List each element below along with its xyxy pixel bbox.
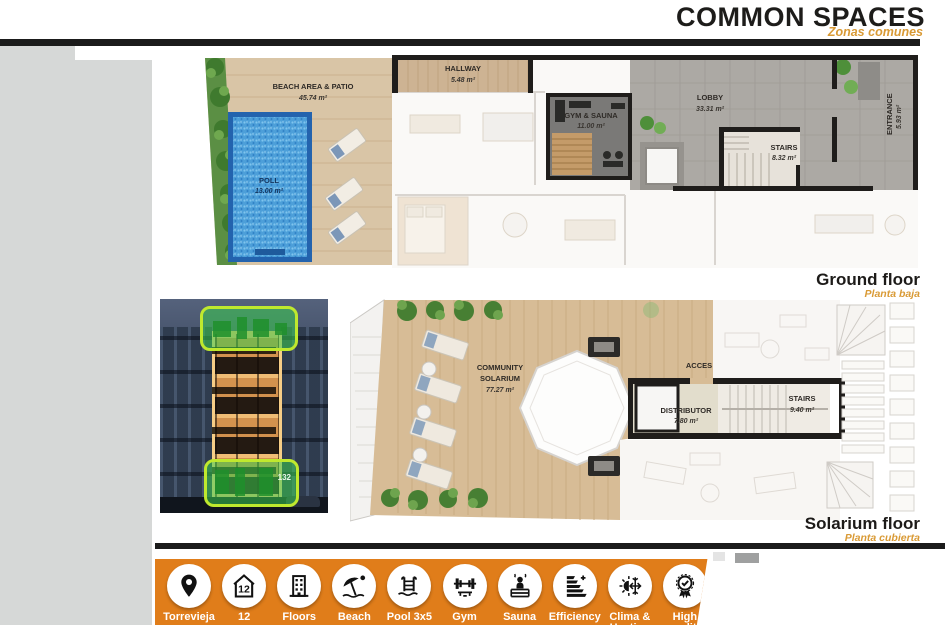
ground-floor-plan: POLL 13.00 m² BEACH AREA & PATIO 45.74 m… (195, 55, 920, 270)
hallway-area: 5.48 m² (451, 77, 476, 84)
dumbbell-icon (443, 564, 487, 608)
feature-label: Floors (282, 611, 316, 623)
entrance-zone (858, 62, 880, 100)
unit-number: 132 (278, 473, 291, 482)
feature-efficiency: Efficiency (551, 564, 599, 623)
building-floors-icon (277, 564, 321, 608)
ground-floor-title: Ground floor (816, 271, 920, 289)
community-solarium-area: 77.27 m² (486, 387, 515, 394)
beach-area-size: 45.74 m² (298, 95, 328, 102)
feature-label: 12 (238, 611, 250, 623)
award-icon (663, 564, 707, 608)
faded-terrace-bottom (620, 440, 840, 520)
feature-location: Torrevieja (165, 564, 213, 623)
sauna-icon (498, 564, 542, 608)
feature-pool: Pool 3x5 (385, 564, 433, 623)
features-banner: Torrevieja 12 12 Floors Beach Pool 3x5 (155, 559, 713, 625)
artifact-mark-light (713, 552, 725, 561)
feature-quality: High quality (661, 564, 709, 625)
stairs-solarium-label: STAIRS (789, 394, 816, 403)
lobby-area: 33.31 m² (696, 106, 725, 113)
octagonal-skylight (520, 351, 634, 465)
gym-label: GYM & SAUNA (564, 111, 618, 120)
feature-beach: Beach (330, 564, 378, 623)
community-solarium-label-1: COMMUNITY (477, 363, 523, 372)
feature-floors: Floors (275, 564, 323, 623)
beach-umbrella-icon (332, 564, 376, 608)
acces-label: ACCES (686, 361, 712, 370)
feature-label: Efficiency (549, 611, 601, 623)
feature-label: Pool 3x5 (387, 611, 432, 623)
hallway (398, 57, 532, 92)
feature-label: Sauna (503, 611, 536, 623)
artifact-mark-dark (735, 553, 759, 563)
distributor-label: DISTRIBUTOR (660, 406, 712, 415)
beach-area-label: BEACH AREA & PATIO (273, 82, 354, 91)
pool-area: 13.00 m² (255, 188, 284, 195)
acces-door-gap (690, 378, 713, 384)
solarium-floor-title: Solarium floor (805, 515, 920, 533)
feature-label: Gym (452, 611, 476, 623)
feature-label: Beach (338, 611, 371, 623)
bottom-divider-bar (155, 543, 945, 549)
solarium-floor-plan: COMMUNITY SOLARIUM 77.27 m² (350, 293, 922, 525)
top-divider-bar (0, 39, 920, 46)
elevator (640, 142, 684, 190)
building-photo: 132 (160, 299, 328, 513)
feature-climate: Clima & Heating (606, 564, 654, 625)
feature-gym: Gym (440, 564, 488, 623)
location-pin-icon (167, 564, 211, 608)
hallway-label: HALLWAY (445, 64, 481, 73)
pool-label: POLL (259, 176, 279, 185)
feature-sauna: Sauna (496, 564, 544, 623)
gym-area: 11.00 m² (577, 123, 605, 130)
feature-label: Torrevieja (163, 611, 215, 623)
lobby-label: LOBBY (697, 93, 723, 102)
distributor-area: 7.80 m² (674, 418, 699, 425)
ground-floor-highlight-box: 132 (204, 459, 299, 507)
gym-sauna-room (548, 95, 630, 178)
entrance-area: 5.93 m² (896, 104, 903, 129)
page-subtitle: Zonas comunes (828, 25, 923, 39)
left-gray-panel-step (0, 46, 75, 60)
pool-ladder-icon (387, 564, 431, 608)
left-gray-panel (0, 60, 152, 625)
svg-text:12: 12 (238, 583, 250, 595)
climate-icon (608, 564, 652, 608)
stairs-solarium-area: 9.40 m² (790, 407, 815, 414)
stairs-label: STAIRS (771, 143, 798, 152)
house-number-icon: 12 (222, 564, 266, 608)
faded-terrace-top (713, 300, 840, 378)
solarium-highlight-box (200, 306, 298, 351)
brochure-page: COMMON SPACES Zonas comunes (0, 0, 945, 625)
feature-units: 12 12 (220, 564, 268, 623)
community-solarium-label-2: SOLARIUM (480, 374, 520, 383)
pool (228, 112, 312, 262)
entrance-label: ENTRANCE (885, 93, 894, 135)
solarium-floor-caption: Solarium floor Planta cubierta (805, 515, 920, 544)
energy-efficiency-icon (553, 564, 597, 608)
stairs-area: 8.32 m² (772, 155, 797, 162)
